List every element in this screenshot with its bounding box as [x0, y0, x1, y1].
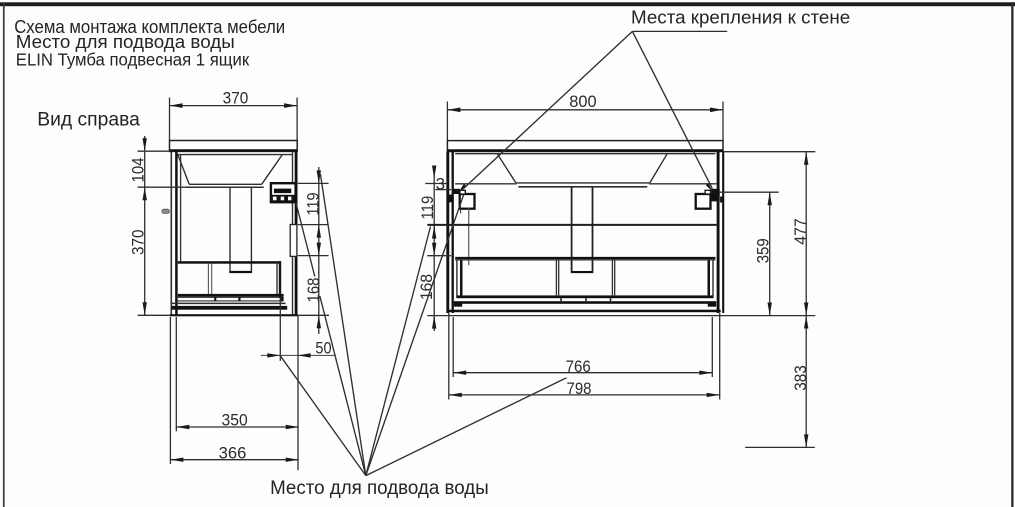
- svg-text:119: 119: [418, 196, 437, 220]
- svg-text:359: 359: [753, 238, 772, 263]
- svg-text:477: 477: [791, 218, 810, 245]
- svg-text:800: 800: [569, 92, 596, 111]
- svg-text:Место для подвода воды: Место для подвода воды: [270, 477, 489, 499]
- svg-text:Места крепления к стене: Места крепления к стене: [631, 7, 850, 28]
- svg-text:50: 50: [315, 339, 331, 358]
- svg-text:3: 3: [436, 175, 445, 194]
- svg-text:366: 366: [219, 443, 247, 462]
- svg-text:766: 766: [566, 357, 591, 376]
- svg-text:798: 798: [567, 379, 592, 398]
- svg-text:ELIN Тумба подвесная 1 ящик: ELIN Тумба подвесная 1 ящик: [16, 49, 250, 69]
- svg-text:119: 119: [303, 193, 322, 216]
- svg-text:370: 370: [223, 88, 249, 107]
- svg-text:168: 168: [417, 274, 436, 300]
- svg-text:350: 350: [222, 410, 248, 429]
- svg-text:104: 104: [128, 158, 147, 183]
- svg-text:383: 383: [791, 365, 810, 391]
- svg-text:370: 370: [128, 230, 147, 256]
- svg-text:Вид справа: Вид справа: [37, 110, 140, 131]
